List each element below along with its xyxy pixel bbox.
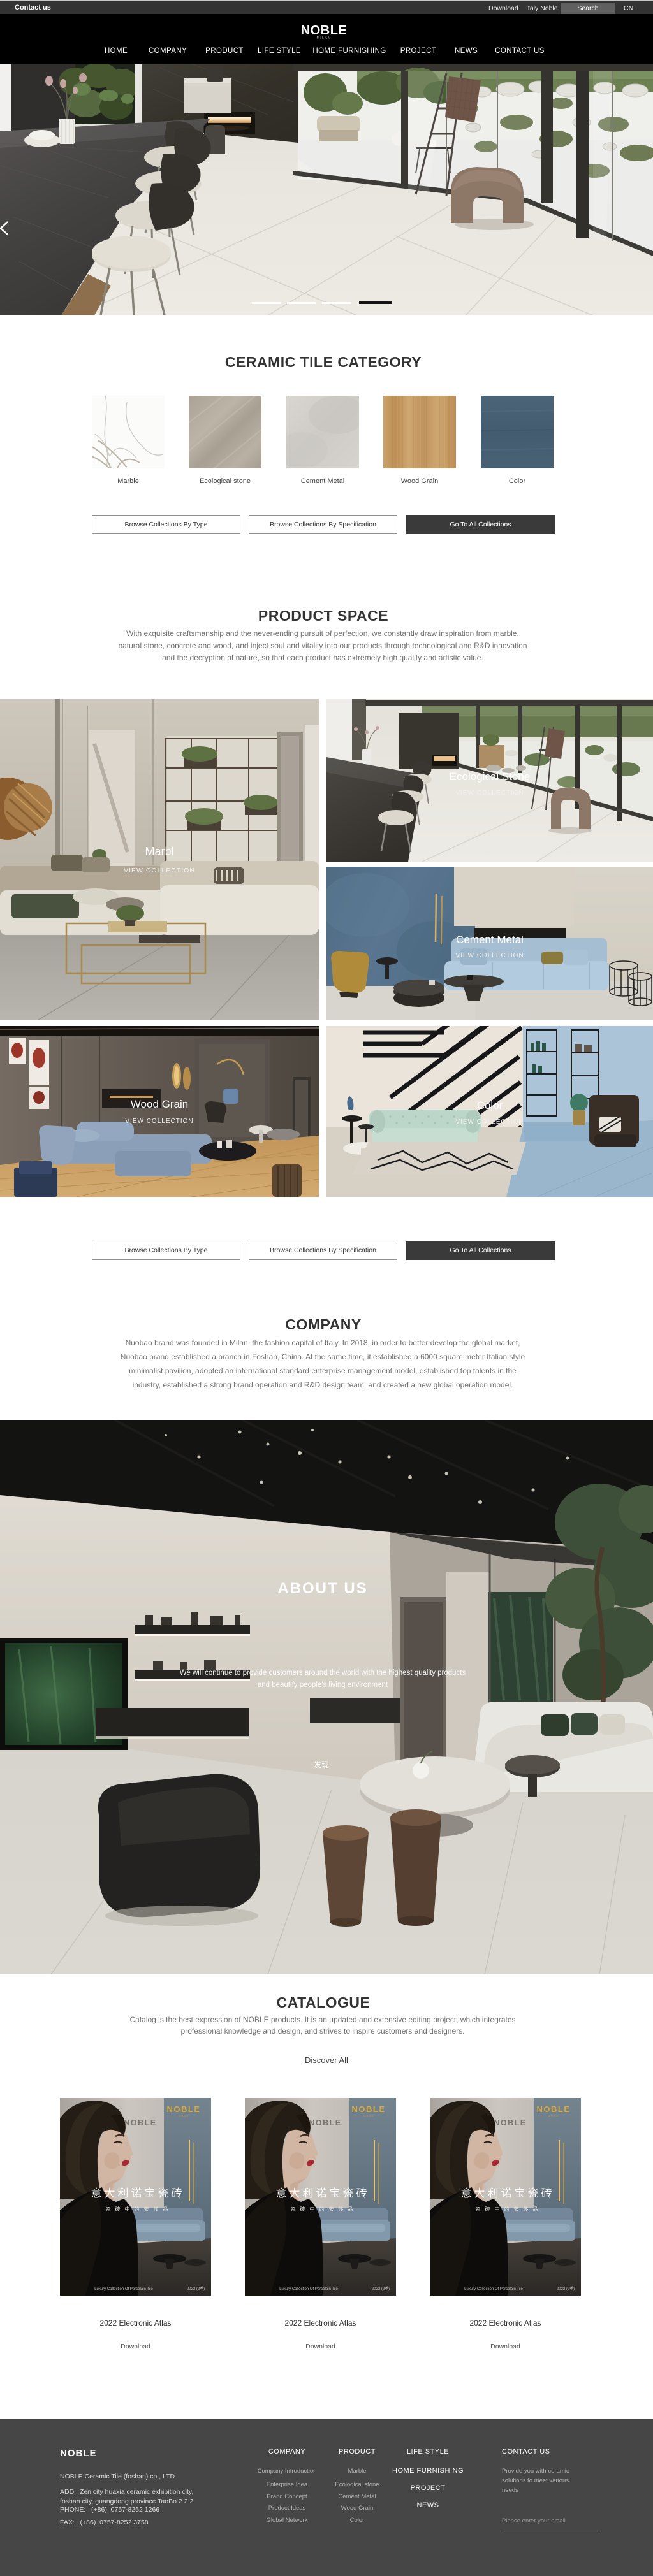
svg-text:VIEW COLLECTION: VIEW COLLECTION: [455, 952, 524, 959]
svg-text:and beautify people's living e: and beautify people's living environment: [258, 1681, 388, 1689]
svg-text:Cement Metal: Cement Metal: [456, 934, 524, 946]
svg-text:VIEW COLLECTION: VIEW COLLECTION: [455, 790, 524, 797]
svg-text:发现: 发现: [314, 1760, 329, 1769]
svg-text:Color: Color: [477, 1099, 503, 1111]
svg-text:Ecological Stone: Ecological Stone: [450, 771, 531, 783]
svg-text:We will continue to provide cu: We will continue to provide customers ar…: [180, 1669, 466, 1677]
svg-text:ABOUT US: ABOUT US: [277, 1580, 367, 1597]
svg-text:VIEW COLLECTION: VIEW COLLECTION: [124, 867, 195, 874]
svg-text:Wood Grain: Wood Grain: [131, 1098, 188, 1110]
svg-text:Marbl: Marbl: [145, 845, 173, 858]
svg-text:VIEW COLLECTION: VIEW COLLECTION: [125, 1118, 193, 1125]
svg-text:VIEW COLLECTION: VIEW COLLECTION: [455, 1118, 524, 1125]
